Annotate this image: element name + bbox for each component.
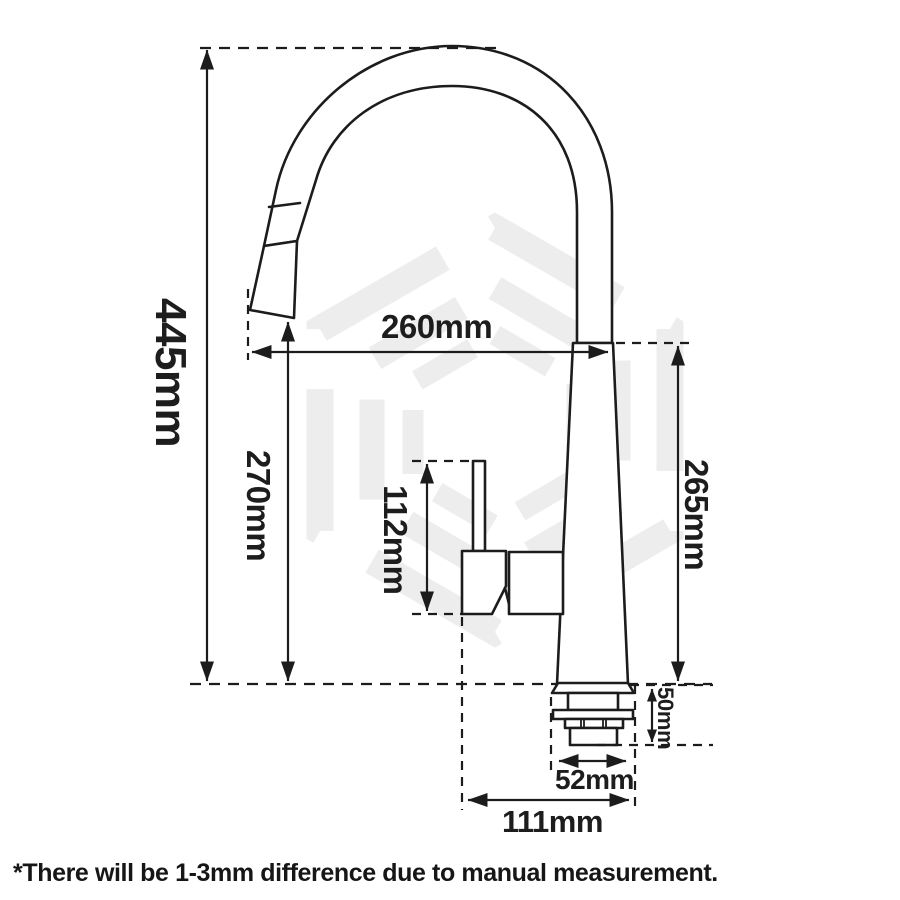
- dimension-label-base-span: 111mm: [502, 806, 603, 837]
- dimension-label-handle-height: 112mm: [379, 485, 412, 594]
- dimension-label-total-height: 445mm: [148, 298, 192, 447]
- dimension-lines: [200, 48, 713, 810]
- base-flange: [552, 683, 634, 693]
- handle-lever: [473, 461, 485, 551]
- spray-head: [250, 241, 297, 318]
- dimension-label-body-height: 265mm: [680, 459, 713, 570]
- shank-washer: [553, 710, 633, 719]
- spout-gooseneck: [264, 46, 612, 343]
- dimension-label-shank-depth: 50mm: [654, 687, 676, 749]
- faucet-dimension-diagram: 445mm 260mm 270mm 112mm 265mm 50mm 52mm …: [0, 0, 900, 900]
- shank-upper: [568, 693, 618, 710]
- measurement-disclaimer-footnote: *There will be 1-3mm difference due to m…: [13, 859, 718, 888]
- dimension-label-spout-reach: 260mm: [381, 310, 492, 343]
- handle-housing-left: [462, 551, 506, 614]
- dimension-label-shank-width: 52mm: [555, 766, 634, 794]
- dimension-label-outlet-clearance: 270mm: [242, 450, 275, 561]
- handle-housing-right: [509, 552, 563, 614]
- technical-drawing-canvas: [0, 0, 900, 900]
- shank-lower: [570, 728, 617, 745]
- shank-locknut: [565, 719, 623, 728]
